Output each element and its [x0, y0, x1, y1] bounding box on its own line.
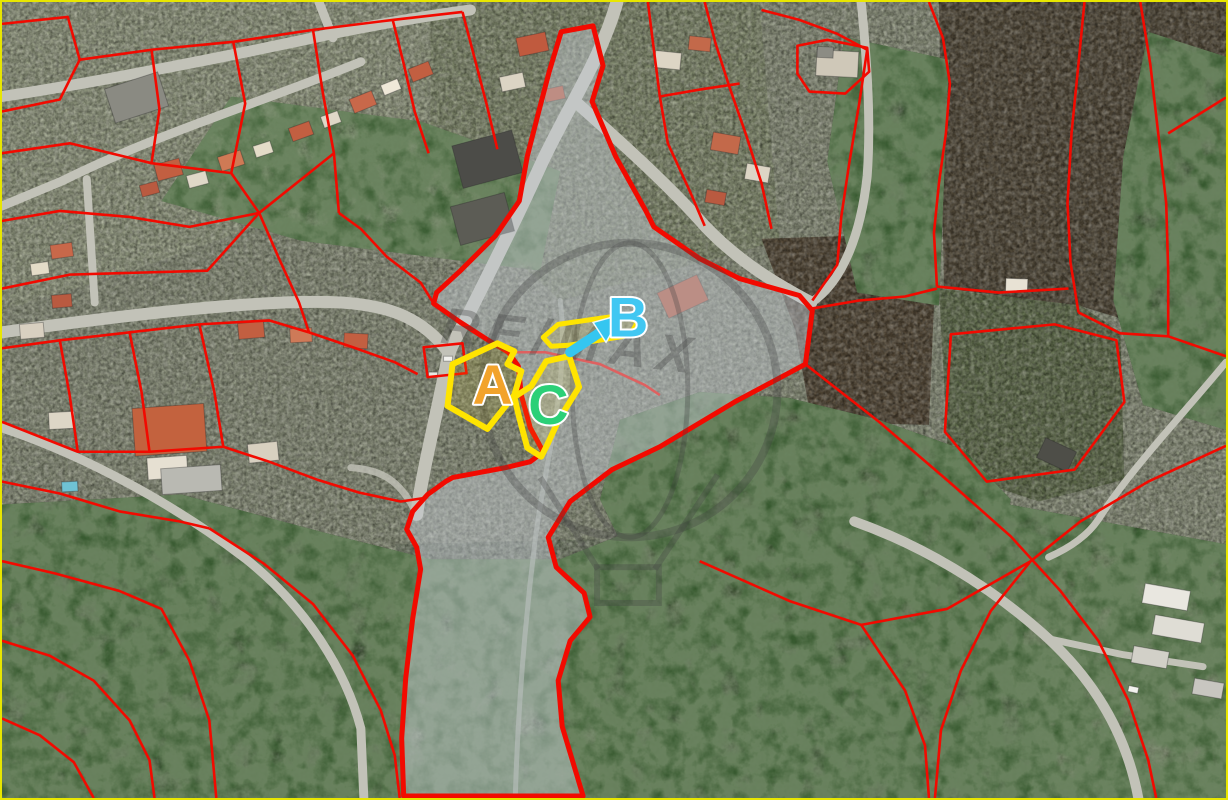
map-canvas: RE/MAX A C B — [2, 2, 1226, 798]
aerial-map-viewport: RE/MAX A C B — [0, 0, 1228, 800]
marker-label-A: A — [472, 354, 512, 416]
marker-label-C: C — [528, 374, 568, 436]
marker-label-B: B — [608, 286, 648, 348]
